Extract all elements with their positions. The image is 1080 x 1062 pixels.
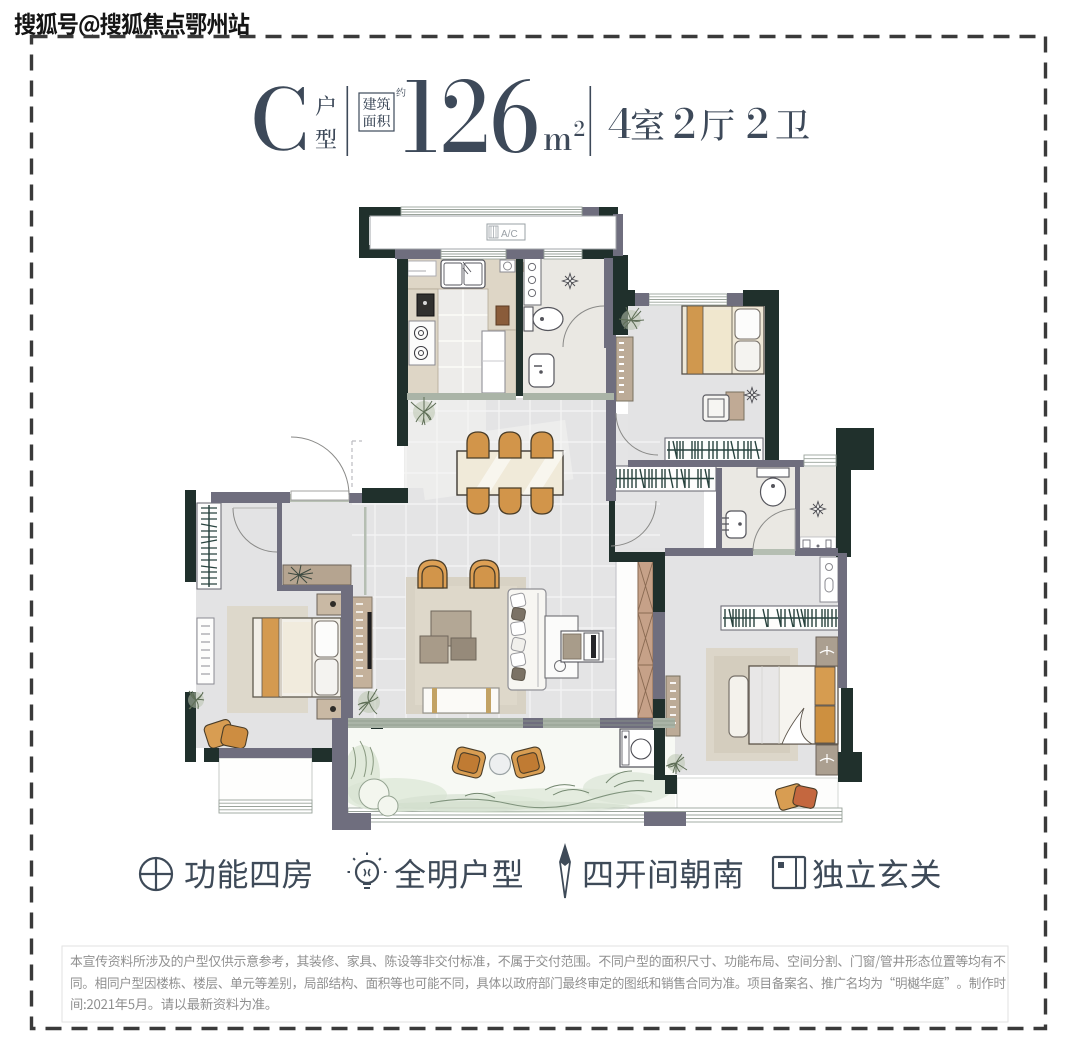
svg-text:A/C: A/C [501, 229, 518, 240]
